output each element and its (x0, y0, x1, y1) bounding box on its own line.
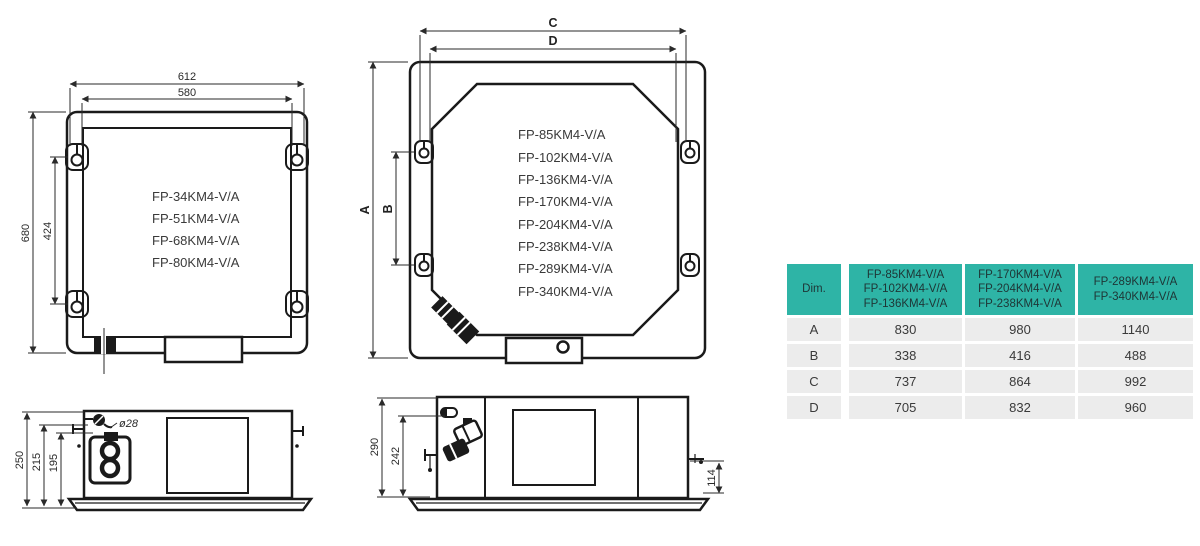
drawing-large-unit-top-view: C D A B FP-85KM4-V/A FP-102KM4-V/A FP-13… (358, 16, 705, 363)
pipe-fitting-icon (102, 443, 118, 459)
pipe-cap-icon (104, 432, 118, 441)
model-name: FP-102KM4-V/A (864, 282, 948, 297)
table-row-label: A (787, 318, 841, 341)
model-label: FP-85KM4-V/A (518, 127, 606, 142)
keyhole-bracket-icon (286, 144, 308, 170)
hanger-hook-icon (425, 449, 437, 472)
keyhole-bracket-icon (66, 144, 88, 170)
model-label: FP-340KM4-V/A (518, 284, 613, 299)
hanger-hook-icon (292, 426, 303, 448)
access-panel (167, 418, 248, 493)
table-header-group-1: FP-85KM4-V/A FP-102KM4-V/A FP-136KM4-V/A (849, 264, 962, 315)
table-header-dim: Dim. (787, 264, 841, 315)
model-name: FP-136KM4-V/A (864, 297, 948, 312)
model-label: FP-204KM4-V/A (518, 217, 613, 232)
table-value: 980 (965, 318, 1075, 341)
dim-424-label: 424 (42, 222, 54, 240)
dim-242-label: 242 (390, 447, 402, 465)
table-row-label: B (787, 344, 841, 367)
access-panel (513, 410, 595, 485)
table-value: 960 (1078, 396, 1193, 419)
junction-box-hole (558, 342, 569, 353)
table-value: 488 (1078, 344, 1193, 367)
table-value: 416 (965, 344, 1075, 367)
dim-215-label: 215 (31, 453, 43, 471)
model-label: FP-170KM4-V/A (518, 194, 613, 209)
model-name: FP-85KM4-V/A (867, 268, 944, 283)
ceiling-panel (410, 499, 708, 510)
dim-195-label: 195 (48, 454, 60, 472)
model-label: FP-238KM4-V/A (518, 239, 613, 254)
model-label: FP-34KM4-V/A (152, 189, 240, 204)
dim-drain-diameter-label: ø28 (119, 418, 139, 430)
model-name: FP-204KM4-V/A (978, 282, 1062, 297)
drawing-small-unit-side-view: 250 215 195 ø28 (14, 411, 311, 510)
dim-612-label: 612 (178, 71, 196, 83)
model-name: FP-238KM4-V/A (978, 297, 1062, 312)
keyhole-bracket-icon (415, 254, 433, 276)
unit-outline (437, 397, 688, 498)
ceiling-panel (69, 499, 311, 510)
junction-box (506, 338, 582, 363)
model-label: FP-68KM4-V/A (152, 233, 240, 248)
table-value: 338 (849, 344, 962, 367)
table-header-group-3: FP-289KM4-V/A FP-340KM4-V/A (1078, 264, 1193, 315)
dimension-table: Dim. FP-85KM4-V/A FP-102KM4-V/A FP-136KM… (787, 264, 1193, 419)
dimension-lines (377, 398, 724, 497)
model-label: FP-136KM4-V/A (518, 172, 613, 187)
model-name: FP-340KM4-V/A (1094, 290, 1178, 305)
hanger-hook-icon (688, 454, 704, 464)
model-label: FP-289KM4-V/A (518, 261, 613, 276)
keyhole-bracket-icon (66, 291, 88, 317)
dim-D-label: D (548, 34, 557, 48)
table-value: 832 (965, 396, 1075, 419)
drawing-small-unit-top-view: 612 580 680 424 FP-34KM4-V/A FP-51KM4-V/… (20, 71, 308, 374)
dim-C-label: C (548, 16, 557, 30)
dim-250-label: 250 (14, 451, 26, 469)
table-header-group-2: FP-170KM4-V/A FP-204KM4-V/A FP-238KM4-V/… (965, 264, 1075, 315)
model-label: FP-51KM4-V/A (152, 211, 240, 226)
dim-680-label: 680 (20, 224, 32, 242)
technical-drawings: 612 580 680 424 FP-34KM4-V/A FP-51KM4-V/… (0, 0, 780, 546)
pipe-fitting-icon (102, 460, 118, 476)
fan-coil-dimension-sheet: 612 580 680 424 FP-34KM4-V/A FP-51KM4-V/… (0, 0, 1200, 546)
model-name: FP-170KM4-V/A (978, 268, 1062, 283)
table-row-label: D (787, 396, 841, 419)
dim-580-label: 580 (178, 87, 196, 99)
keyhole-bracket-icon (681, 141, 699, 163)
dim-290-label: 290 (369, 438, 381, 456)
dim-A-label: A (358, 205, 372, 214)
hanger-hook-icon (73, 424, 84, 448)
table-value: 992 (1078, 370, 1193, 393)
dim-114-label: 114 (706, 469, 718, 487)
drawing-large-unit-side-view: 290 242 114 (369, 397, 724, 510)
keyhole-bracket-icon (415, 141, 433, 163)
keyhole-bracket-icon (681, 254, 699, 276)
model-label: FP-80KM4-V/A (152, 255, 240, 270)
pipe-connection-icon (441, 408, 483, 462)
junction-box (165, 337, 242, 362)
table-value: 830 (849, 318, 962, 341)
table-value: 705 (849, 396, 962, 419)
table-row-label: C (787, 370, 841, 393)
table-value: 737 (849, 370, 962, 393)
table-value: 1140 (1078, 318, 1193, 341)
model-label: FP-102KM4-V/A (518, 150, 613, 165)
dim-B-label: B (381, 204, 395, 213)
keyhole-bracket-icon (286, 291, 308, 317)
table-value: 864 (965, 370, 1075, 393)
model-name: FP-289KM4-V/A (1094, 275, 1178, 290)
